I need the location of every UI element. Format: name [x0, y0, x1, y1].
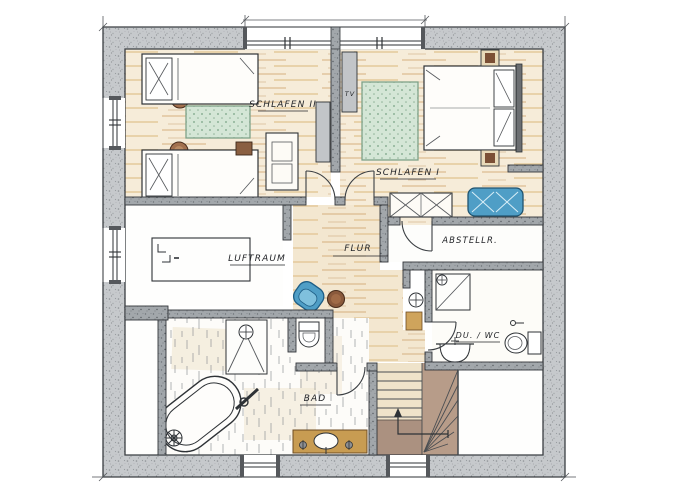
label-schlafen2: SCHLAFEN II [249, 100, 317, 110]
floor-plan-drawing: SCHLAFEN II SCHLAFEN I TV ABSTELLR. LUFT… [0, 0, 700, 500]
wall-luftraum-south [125, 306, 168, 320]
stair-landing [377, 420, 422, 455]
wall-abstellraum-north-a [388, 217, 400, 225]
wall-duwc-south [425, 362, 543, 370]
wall-bad-door-right [367, 363, 377, 371]
label-flur: FLUR [344, 244, 371, 254]
sideboard-icon [316, 102, 330, 162]
shower-icon [436, 274, 470, 310]
staircase [377, 363, 458, 455]
round-side-table-top [331, 294, 341, 304]
wall-bottom-left-strip [158, 320, 166, 455]
dresser-icon [266, 133, 298, 190]
single-bed-icon [142, 54, 258, 104]
toilet-icon [299, 322, 319, 347]
bottom-left-strip-floor [125, 320, 158, 455]
wall-tv-partition [331, 30, 340, 172]
wall-bedroom-south-left [125, 197, 306, 205]
side-table-icon [236, 142, 252, 155]
label-luftraum: LUFTRAUM [228, 254, 286, 264]
single-bed-icon [142, 150, 258, 200]
tv-lowboard-icon [342, 52, 357, 112]
green-rug-icon [362, 82, 418, 160]
wall-bad-north [168, 310, 333, 318]
wall-duwc-west-lower [425, 352, 432, 362]
wall-abstellraum-south [403, 262, 543, 270]
floor-plan-screenshot: SCHLAFEN II SCHLAFEN I TV ABSTELLR. LUFT… [0, 0, 700, 500]
walk-in-shower-icon [226, 320, 267, 374]
nightstand-icon [481, 150, 499, 166]
window-left-1 [101, 96, 125, 150]
toilet-icon [505, 332, 541, 354]
wall-bedroom-south-mid [335, 197, 345, 205]
cabinet-icon [406, 312, 422, 330]
wall-niche-west [403, 270, 410, 288]
label-abstellraum: ABSTELLR. [441, 236, 498, 246]
wall-schlafen1-stub [508, 165, 543, 172]
wall-bedroom-south-right [374, 197, 388, 205]
nightstand-icon [481, 50, 499, 66]
wall-luftraum-east [283, 205, 291, 240]
hand-basin-icon [409, 293, 423, 307]
double-bed-icon [424, 64, 522, 152]
label-schlafen1: SCHLAFEN I [376, 168, 440, 178]
vanity-sink-icon [293, 430, 367, 454]
wall-bad-door-left [296, 363, 337, 371]
label-bad: BAD [304, 394, 327, 404]
bottom-right-room-floor [458, 370, 543, 455]
wall-stair-west [369, 371, 377, 455]
blue-bench-icon [468, 188, 523, 216]
window-bottom-2 [386, 455, 430, 479]
window-band-top [243, 24, 425, 50]
label-duwc: DU. / WC [456, 331, 501, 340]
window-bottom-1 [240, 455, 280, 479]
label-tv: TV [345, 90, 356, 98]
plant-icon [166, 430, 182, 446]
green-rug-icon [186, 106, 250, 138]
flur-floor-east-wood [380, 270, 403, 330]
window-left-2 [101, 226, 125, 284]
wardrobe-icon [390, 193, 452, 217]
wall-duwc-west-upper [425, 270, 432, 322]
wall-abstellraum-north-b [432, 217, 543, 225]
wall-wc-alcove-right [325, 318, 333, 363]
wall-wc-alcove-left [288, 318, 296, 352]
wall-abstellraum-west [380, 205, 388, 262]
